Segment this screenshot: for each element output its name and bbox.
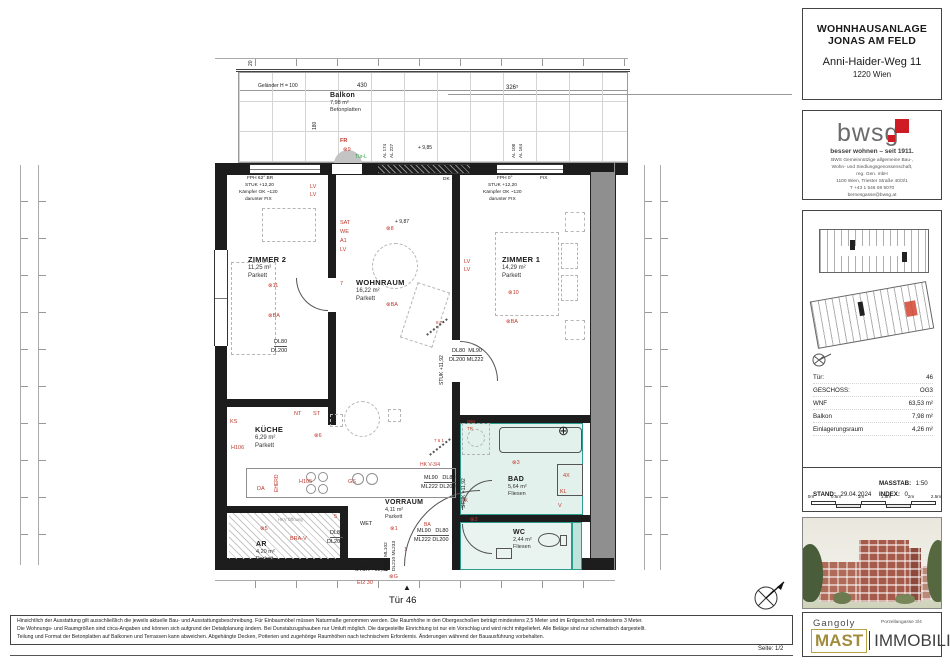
key-plan-box: Tür:46GESCHOSS:OG3WNF63,53 m²Balkon7,98 … bbox=[802, 210, 942, 512]
info-row: Einlagerungsraum4,26 m² bbox=[813, 423, 933, 436]
info-value: 46 bbox=[926, 374, 933, 381]
bwsg-address-line: BWS Gemeinnützige allgemeine Bau-, bbox=[803, 158, 941, 165]
broker-address: Porzellangasse 3/4 bbox=[881, 620, 922, 625]
annotation: AL 174 bbox=[383, 144, 388, 158]
scale-bar-segment bbox=[886, 504, 911, 508]
room-label-zimmer1: ZIMMER 1 14,29 m² Parkett bbox=[502, 255, 540, 280]
kitchen-sink bbox=[366, 473, 378, 485]
project-name-line2: JONAS AM FELD bbox=[803, 35, 941, 47]
toilet-tank bbox=[560, 535, 567, 546]
dimension-chain-left-outer bbox=[20, 165, 28, 565]
site-plan-building-a bbox=[819, 229, 929, 273]
site-plan-core bbox=[858, 301, 865, 316]
room-area: 2,44 m² bbox=[513, 537, 532, 544]
annotation: 7 bbox=[340, 282, 343, 288]
room-name: Balkon bbox=[330, 91, 361, 100]
annotation: DL90 ML102 bbox=[385, 542, 390, 571]
annotation: ML90 DL80 bbox=[417, 529, 449, 536]
building-rendering bbox=[802, 517, 942, 609]
annotation: Geländer H = 100 bbox=[258, 84, 298, 89]
north-arrow-icon bbox=[752, 578, 790, 612]
annotation: DL200 bbox=[327, 540, 343, 546]
info-label: Tür: bbox=[813, 374, 824, 381]
highlighted-unit bbox=[904, 300, 917, 317]
dimension-chain-left-inner bbox=[38, 165, 46, 565]
room-label-wohnraum: WOHNRAUM 16,22 m² Parkett bbox=[356, 278, 405, 303]
scale-bar-segment bbox=[861, 501, 886, 505]
annotation: ⊗BA bbox=[268, 314, 280, 320]
annotation: darunter FIX bbox=[489, 198, 516, 203]
annotation: + 9,87 bbox=[395, 220, 409, 225]
info-label: Einlagerungsraum bbox=[813, 426, 863, 433]
annotation: + 9,85 bbox=[418, 146, 432, 151]
bwsg-logo-text: bwsg bbox=[837, 119, 899, 147]
annotation: BRA-V bbox=[290, 537, 307, 543]
annotation: ⊗11 bbox=[268, 284, 278, 290]
annotation: 8 7 bbox=[436, 321, 442, 326]
scale-bar: 0m0.5m1m1.5m2m2.5m bbox=[811, 494, 936, 510]
kitchen-hob-ring bbox=[318, 472, 328, 482]
bwsg-tagline: besser wohnen – seit 1911. bbox=[803, 148, 941, 155]
info-label: Balkon bbox=[813, 413, 832, 420]
annotation: Kämpfer OK ~120 bbox=[239, 191, 278, 196]
annotation: AL 108 bbox=[512, 144, 517, 158]
scale-bar-label: 1m bbox=[858, 494, 864, 499]
room-area: 14,29 m² bbox=[502, 265, 540, 273]
scale-bar-segment bbox=[836, 504, 861, 508]
scale-bar-label: 0m bbox=[808, 494, 814, 499]
annotation: SAT bbox=[340, 221, 350, 227]
furniture-chair bbox=[388, 409, 401, 422]
bwsg-address-line: reg. Gen. mbH bbox=[803, 172, 941, 179]
page-number: Seite: 1/2 bbox=[758, 646, 783, 652]
annotation: EHERD bbox=[275, 474, 280, 492]
bush bbox=[895, 594, 915, 604]
balcony-railing bbox=[236, 69, 630, 72]
annotation: GS bbox=[348, 480, 356, 486]
room-label-kueche: KÜCHE 6,29 m² Parkett bbox=[255, 425, 283, 450]
furniture-sofa bbox=[400, 282, 450, 348]
annotation: EI2 30 bbox=[357, 581, 373, 587]
window-wohnraum-top bbox=[378, 164, 470, 174]
annotation: ML222 DL200 bbox=[414, 538, 449, 544]
room-floor: Fliesen bbox=[513, 544, 532, 551]
door-zimmer2 bbox=[296, 278, 328, 311]
annotation: ⊕ bbox=[558, 424, 569, 437]
room-floor: Parkett bbox=[256, 556, 275, 563]
bwsg-address-line: Wohn- und Siedlungsgenossenschaft, bbox=[803, 165, 941, 172]
footer-rule bbox=[10, 655, 793, 656]
dimension-chain-top bbox=[215, 58, 628, 66]
wall-kueche-top bbox=[227, 399, 328, 407]
room-name: ZIMMER 1 bbox=[502, 255, 540, 265]
kitchen-hob-ring bbox=[318, 484, 328, 494]
room-area: 6,29 m² bbox=[255, 435, 283, 443]
annotation: WE bbox=[340, 230, 349, 236]
window-zimmer1-top bbox=[497, 164, 563, 174]
room-floor: Fliesen bbox=[508, 491, 527, 498]
wc-shaft bbox=[572, 522, 582, 570]
room-name: KÜCHE bbox=[255, 425, 283, 435]
annotation: WET bbox=[360, 522, 372, 528]
annotation: DL80 ML90 bbox=[452, 349, 482, 356]
info-value: 7,98 m² bbox=[912, 413, 933, 420]
annotation: LV bbox=[464, 260, 470, 266]
mast-immobilien-logo: MASTIMMOBILIEN bbox=[811, 631, 950, 651]
room-name: BAD bbox=[508, 475, 527, 484]
site-plan-building-b bbox=[810, 281, 935, 349]
annotation: ⊗BA bbox=[386, 303, 398, 309]
room-label-balkon: Balkon 7,98 m² Betonplatten bbox=[330, 91, 361, 114]
immobilien-logo-text: IMMOBILIEN bbox=[869, 631, 950, 650]
dimension-chain-right-outer bbox=[660, 165, 668, 570]
room-floor: Parkett bbox=[255, 443, 283, 451]
wall-right-concrete bbox=[590, 163, 616, 570]
annotation: STUK +12,20 bbox=[245, 184, 274, 189]
room-area: 4,11 m² bbox=[385, 507, 423, 514]
room-label-wc: WC 2,44 m² Fliesen bbox=[513, 528, 532, 551]
room-label-bad: BAD 5,64 m² Fliesen bbox=[508, 475, 527, 498]
room-name: WOHNRAUM bbox=[356, 278, 405, 288]
annotation: HKV Öffnung bbox=[278, 518, 303, 522]
room-floor: Parkett bbox=[385, 514, 423, 521]
annotation: A1 bbox=[340, 239, 347, 245]
dimension-chain-right-inner bbox=[644, 165, 652, 570]
bwsg-box: bwsg besser wohnen – seit 1911. BWS Geme… bbox=[802, 110, 942, 200]
annotation: Tür-L bbox=[355, 155, 367, 160]
annotation: ⊗8 bbox=[386, 227, 394, 233]
annotation: DL80 bbox=[274, 340, 287, 347]
info-row: WNF63,53 m² bbox=[813, 397, 933, 410]
info-value: 4,26 m² bbox=[912, 426, 933, 433]
annotation: FR bbox=[340, 139, 347, 145]
north-arrow-small-icon bbox=[811, 351, 837, 369]
info-label: WNF bbox=[813, 400, 827, 407]
annotation: HK bbox=[461, 499, 468, 504]
annotation: ⊗1 bbox=[390, 527, 398, 533]
annotation: HK V-3/4 bbox=[420, 463, 440, 468]
project-street: Anni-Haider-Weg 11 bbox=[803, 56, 941, 68]
annotation: ⊗2 bbox=[470, 518, 478, 524]
room-name: AR bbox=[256, 540, 275, 549]
annotation: V bbox=[558, 504, 562, 510]
masstab-value: 1:50 bbox=[916, 480, 928, 487]
annotation: DL80 bbox=[330, 531, 343, 538]
balcony-door-opening bbox=[332, 164, 362, 174]
entry-door-label: Tür 46 bbox=[389, 596, 416, 606]
annotation: ⊗BA bbox=[506, 320, 518, 326]
annotation: H106 bbox=[231, 446, 244, 452]
toilet-bowl bbox=[538, 533, 560, 547]
wall-ar-top bbox=[227, 506, 348, 513]
project-name-line1: WOHNHAUSANLAGE bbox=[803, 23, 941, 35]
wall-wohnraum-zimmer1-upper bbox=[452, 175, 460, 340]
furniture-pillow bbox=[561, 243, 578, 269]
wall-ar-right bbox=[340, 506, 348, 570]
scale-bar-segment bbox=[911, 501, 936, 505]
bwsg-logo: bwsg bbox=[837, 119, 899, 148]
project-city: 1220 Wien bbox=[803, 70, 941, 79]
room-floor: Parkett bbox=[502, 273, 540, 281]
tree bbox=[802, 544, 823, 602]
info-table: Tür:46GESCHOSS:OG3WNF63,53 m²Balkon7,98 … bbox=[813, 371, 933, 436]
scale-bar-segment bbox=[811, 501, 836, 505]
annotation: STUK +11,92 bbox=[440, 355, 445, 385]
annotation: ⊗5 bbox=[260, 527, 268, 533]
annotation: LV bbox=[340, 248, 346, 254]
furniture-table-kueche bbox=[344, 401, 380, 437]
annotation: 430 bbox=[357, 83, 367, 89]
annotation: NT bbox=[294, 412, 301, 418]
annotation: DA bbox=[257, 487, 265, 493]
furniture-wardrobe bbox=[262, 208, 316, 242]
room-label-zimmer2: ZIMMER 2 11,25 m² Parkett bbox=[248, 255, 286, 280]
annotation: 4X bbox=[563, 474, 570, 480]
washing-machine-drum bbox=[467, 429, 485, 447]
annotation: DK bbox=[443, 178, 450, 183]
annotation: ⊗10 bbox=[508, 291, 519, 297]
architect-name: Gangoly bbox=[813, 618, 855, 629]
annotation: ⊗6 bbox=[314, 434, 322, 440]
annotation: Kämpfer OK ~120 bbox=[483, 191, 522, 196]
annotation: STUK +12,20 bbox=[488, 184, 517, 189]
annotation: FPH 62° BR bbox=[247, 177, 273, 182]
tree bbox=[927, 540, 942, 602]
rendered-tower-side bbox=[909, 548, 921, 602]
scale-bar-label: 0.5m bbox=[831, 494, 841, 499]
room-area: 11,25 m² bbox=[248, 265, 286, 273]
wall-zimmer2-wohnraum-lower bbox=[328, 312, 336, 425]
scale-bar-label: 2.5m bbox=[931, 494, 941, 499]
annotation: LV bbox=[310, 193, 316, 199]
disclaimer-line: Teilung und Format der Betonplatten auf … bbox=[17, 634, 786, 642]
annotation: 5 bbox=[334, 515, 337, 521]
annotation: ⊗9 bbox=[343, 148, 351, 154]
annotation: ⊗3 bbox=[512, 461, 520, 467]
scale-bar-label: 2m bbox=[908, 494, 914, 499]
annotation: ML222 DL200 bbox=[421, 485, 456, 491]
bathtub bbox=[499, 427, 582, 453]
wall-zimmer2-wohnraum-upper bbox=[328, 175, 336, 278]
window-zimmer2-top bbox=[250, 164, 320, 174]
annotation: LV bbox=[310, 185, 316, 191]
annotation: DL200 bbox=[271, 349, 287, 355]
annotation: BA bbox=[424, 523, 431, 528]
furniture-chair bbox=[330, 414, 343, 427]
wall-right-cap-top bbox=[590, 163, 614, 172]
room-label-ar: AR 4,20 m² Parkett bbox=[256, 540, 275, 563]
window-zimmer2-left bbox=[214, 250, 228, 346]
annotation: KL bbox=[560, 490, 567, 496]
annotation: H105 bbox=[299, 480, 312, 486]
annotation: ML90 DL80 bbox=[424, 476, 456, 483]
room-label-vorraum: VORRAUM 4,11 m² Parkett bbox=[385, 498, 423, 521]
annotation: 1 bbox=[404, 548, 407, 554]
dimension-chain-bottom bbox=[215, 580, 615, 588]
info-row: Tür:46 bbox=[813, 371, 933, 384]
furniture-pillow bbox=[561, 275, 578, 301]
bwsg-logo-square-small bbox=[888, 135, 895, 142]
broker-box: Gangoly Porzellangasse 3/4 MASTIMMOBILIE… bbox=[802, 612, 942, 657]
bwsg-address-line: bernesgasse@bwsg.at bbox=[803, 193, 941, 200]
mast-logo-text: MAST bbox=[811, 629, 867, 653]
wall-left bbox=[215, 163, 227, 570]
bwsg-address: BWS Gemeinnützige allgemeine Bau-,Wohn- … bbox=[803, 158, 941, 200]
annotation: LV bbox=[464, 268, 470, 274]
annotation: darunter FIX bbox=[245, 198, 272, 203]
room-area: 4,20 m² bbox=[256, 549, 275, 556]
room-floor: Betonplatten bbox=[330, 107, 361, 114]
annotation: ▲ bbox=[403, 584, 411, 592]
site-plan-core bbox=[850, 240, 855, 250]
annotation: DL210 ML233 bbox=[393, 541, 398, 571]
annotation: FIX bbox=[540, 177, 547, 182]
room-area: 7,98 m² bbox=[330, 100, 361, 107]
annotation: FPH 0° bbox=[497, 177, 513, 182]
annotation: KS bbox=[230, 420, 237, 426]
annotation: ST bbox=[313, 412, 320, 418]
annotation: AL 227 bbox=[390, 144, 395, 158]
annotation: ⊗G bbox=[389, 575, 398, 581]
annotation: TR bbox=[467, 427, 473, 432]
info-value: 63,53 m² bbox=[909, 400, 933, 407]
furniture-nightstand bbox=[565, 320, 585, 340]
room-area: 16,22 m² bbox=[356, 288, 405, 296]
annotation: DL200 ML222 bbox=[449, 358, 484, 364]
bush bbox=[833, 592, 851, 604]
wc-basin bbox=[496, 548, 512, 559]
room-area: 5,64 m² bbox=[508, 484, 527, 491]
bwsg-address-line: 1100 Wien, Triester Straße 40/3/1 bbox=[803, 179, 941, 186]
annotation: WM bbox=[467, 420, 475, 425]
furniture-nightstand bbox=[565, 212, 585, 232]
annotation: 20 bbox=[249, 60, 254, 66]
info-row: GESCHOSS:OG3 bbox=[813, 384, 933, 397]
annotation: 180 bbox=[313, 122, 318, 130]
bwsg-logo-square-large bbox=[895, 119, 909, 133]
disclaimer-line: Die Wohnungs- und Raumgrößen sind circa-… bbox=[17, 626, 786, 634]
rendered-tower bbox=[859, 540, 909, 602]
room-name: WC bbox=[513, 528, 532, 537]
info-value: OG3 bbox=[920, 387, 933, 394]
annotation: AL 164 bbox=[519, 144, 524, 158]
room-name: VORRAUM bbox=[385, 498, 423, 507]
room-floor: Parkett bbox=[248, 273, 286, 281]
meta-divider bbox=[803, 467, 941, 468]
info-row: Balkon7,98 m² bbox=[813, 410, 933, 423]
scale-bar-label: 1.5m bbox=[881, 494, 891, 499]
annotation: 7 6 1 bbox=[434, 439, 444, 444]
room-name: ZIMMER 2 bbox=[248, 255, 286, 265]
annotation: 326⁵ bbox=[506, 85, 519, 91]
site-plan-core bbox=[902, 252, 907, 262]
disclaimer-line: Hinsichtlich der Ausstattung gilt aussch… bbox=[17, 618, 786, 626]
project-title-box: WOHNHAUSANLAGE JONAS AM FELD Anni-Haider… bbox=[802, 8, 942, 100]
kitchen-hob-ring bbox=[306, 484, 316, 494]
info-label: GESCHOSS: bbox=[813, 387, 850, 394]
plan-sheet: Balkon 7,98 m² Betonplatten ZIMMER 2 11,… bbox=[0, 0, 950, 671]
bwsg-address-line: T +43 1 546 08 5070 bbox=[803, 186, 941, 193]
disclaimer-box: Hinsichtlich der Ausstattung gilt aussch… bbox=[10, 615, 793, 645]
